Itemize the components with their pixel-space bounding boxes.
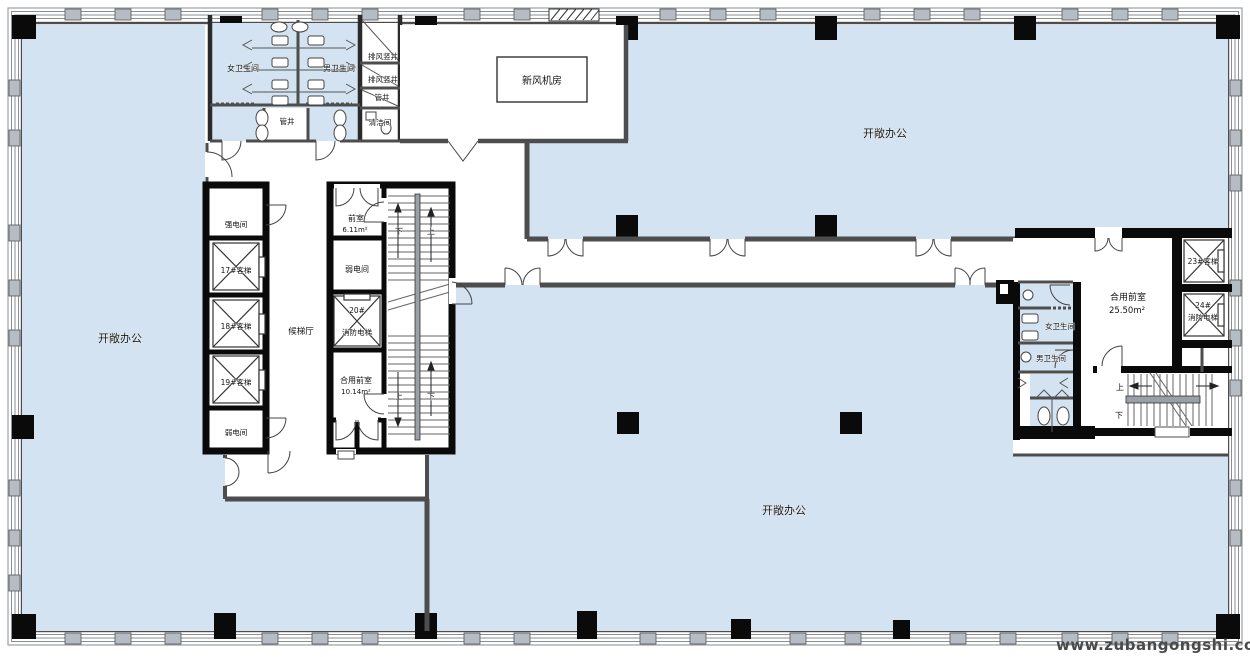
elevator-18-label: 18#客梯 <box>221 321 252 331</box>
anteroom-area-label: 6.11m² <box>342 226 367 234</box>
watermark: www.zubangongshi.com <box>1056 636 1250 654</box>
mens-restroom-top-label: 男卫生间 <box>323 63 355 73</box>
stair-left-down-bottom-label: 下 <box>427 392 435 401</box>
elevator-24-name-label: 消防电梯 <box>1188 312 1218 322</box>
fresh-air-room-label: 新风机房 <box>522 74 562 87</box>
stair-left-up-bottom-label: 上 <box>395 392 403 401</box>
elevator-20-no-label: 20# <box>349 306 365 315</box>
strong-electric-room-label: 强电间 <box>225 219 248 229</box>
womens-restroom-top-label: 女卫生间 <box>227 63 259 73</box>
open-office-bottom-label: 开敞办公 <box>762 503 806 517</box>
shared-anteroom-left-label: 合用前室 <box>340 375 372 385</box>
pipe-shaft-room-label: 管井 <box>280 116 295 126</box>
cleaning-room-label: 清洁间 <box>369 117 392 127</box>
open-office-left-label: 开敞办公 <box>98 331 142 345</box>
fresh-air-room <box>400 25 628 161</box>
weak-electric-room-mid-label: 弱电间 <box>345 264 369 274</box>
open-office-top-right-label: 开敞办公 <box>863 126 907 140</box>
womens-restroom-right-label: 女卫生间 <box>1045 321 1075 331</box>
exhaust-shaft-2-label: 排风竖井 <box>368 74 398 84</box>
floor-plan-svg: 开敞办公 开敞办公 开敞办公 女卫生间 男卫生间 排风竖井 排风竖井 管井 管井… <box>0 0 1250 653</box>
stair-right-up-label: 上 <box>1116 383 1124 392</box>
elevator-lobby-label: 候梯厅 <box>288 326 314 337</box>
anteroom-label: 前室 <box>348 213 364 223</box>
weak-electric-room-lower-label: 弱电间 <box>225 427 248 437</box>
elevator-19-label: 19#客梯 <box>221 377 252 387</box>
mens-restroom-right-label: 男卫生间 <box>1036 353 1066 363</box>
restroom-block-top <box>210 15 400 160</box>
shared-anteroom-right-area-label: 25.50m² <box>1109 306 1145 316</box>
elevator-24-no-label: 24# <box>1195 301 1211 310</box>
stair-right-down-label: 下 <box>1115 411 1123 420</box>
exhaust-shaft-1-label: 排风竖井 <box>368 51 398 61</box>
elevator-20-name-label: 消防电梯 <box>342 327 372 337</box>
elevator-23-label: 23#客梯 <box>1188 256 1219 266</box>
shared-anteroom-right-label: 合用前室 <box>1110 291 1146 303</box>
facade-hatch <box>549 9 599 21</box>
stair-left-down-top-label: 下 <box>395 227 403 236</box>
pipe-shaft-small-label: 管井 <box>375 92 390 102</box>
stair-left-up-top-label: 上 <box>427 227 435 236</box>
elevator-17-label: 17#客梯 <box>221 265 252 275</box>
floor-plan: 开敞办公 开敞办公 开敞办公 女卫生间 男卫生间 排风竖井 排风竖井 管井 管井… <box>0 0 1250 653</box>
shared-anteroom-left-area-label: 10.14m² <box>341 388 371 396</box>
